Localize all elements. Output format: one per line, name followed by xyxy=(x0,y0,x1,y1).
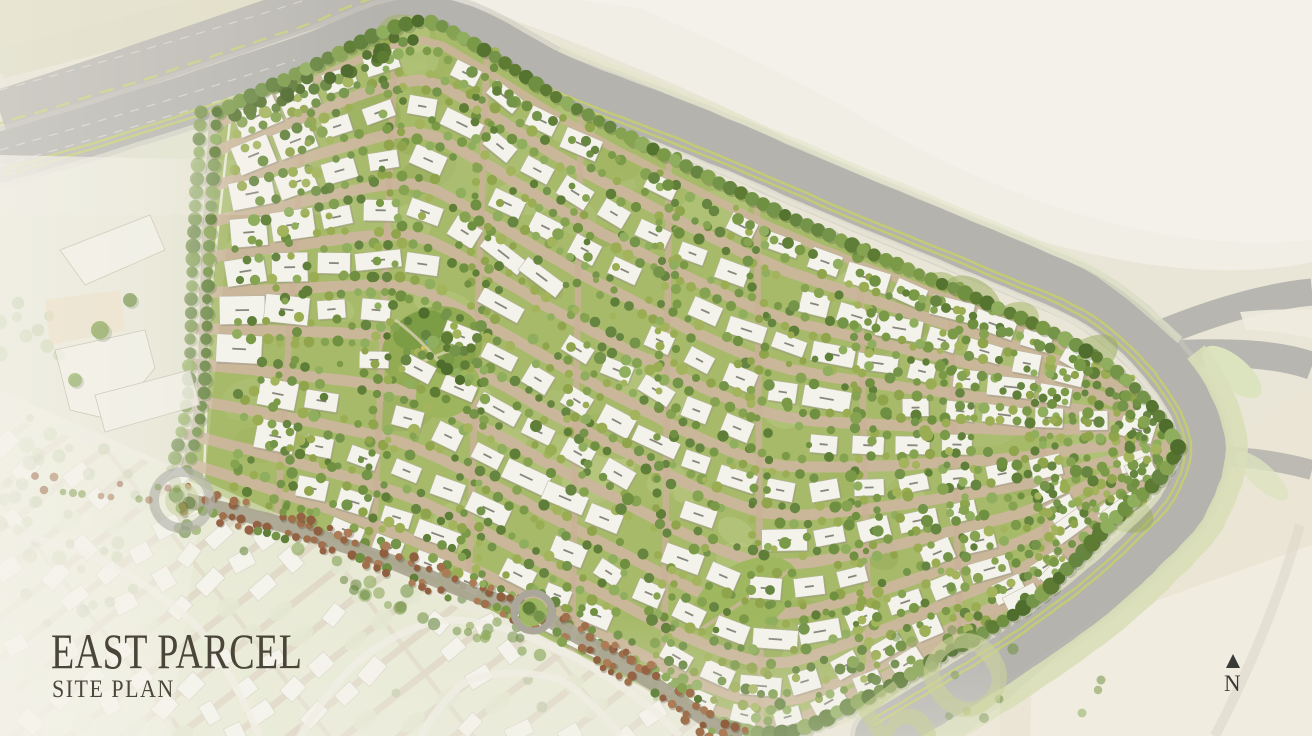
svg-text:EAST PARCEL: EAST PARCEL xyxy=(51,624,302,679)
svg-text:SITE PLAN: SITE PLAN xyxy=(52,676,175,704)
svg-text:N: N xyxy=(1224,671,1241,696)
